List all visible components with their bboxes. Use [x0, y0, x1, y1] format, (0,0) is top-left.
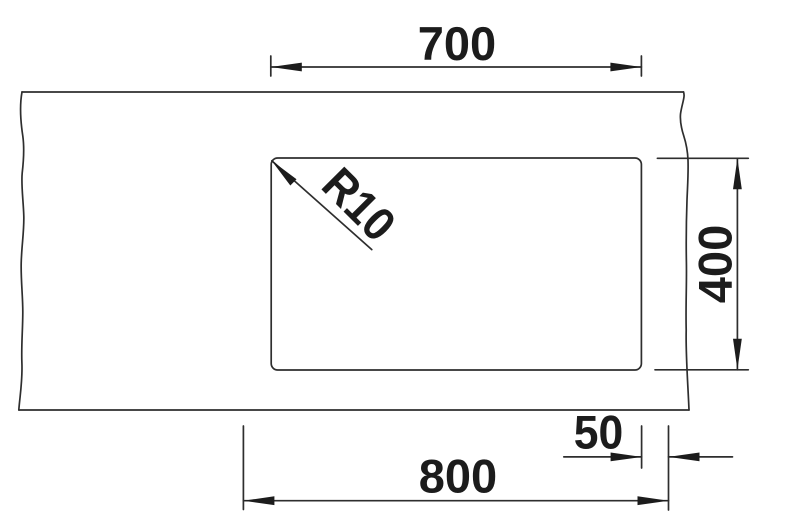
svg-text:50: 50	[574, 406, 624, 459]
svg-text:700: 700	[418, 17, 496, 70]
svg-text:400: 400	[689, 225, 742, 303]
svg-text:800: 800	[419, 450, 497, 503]
